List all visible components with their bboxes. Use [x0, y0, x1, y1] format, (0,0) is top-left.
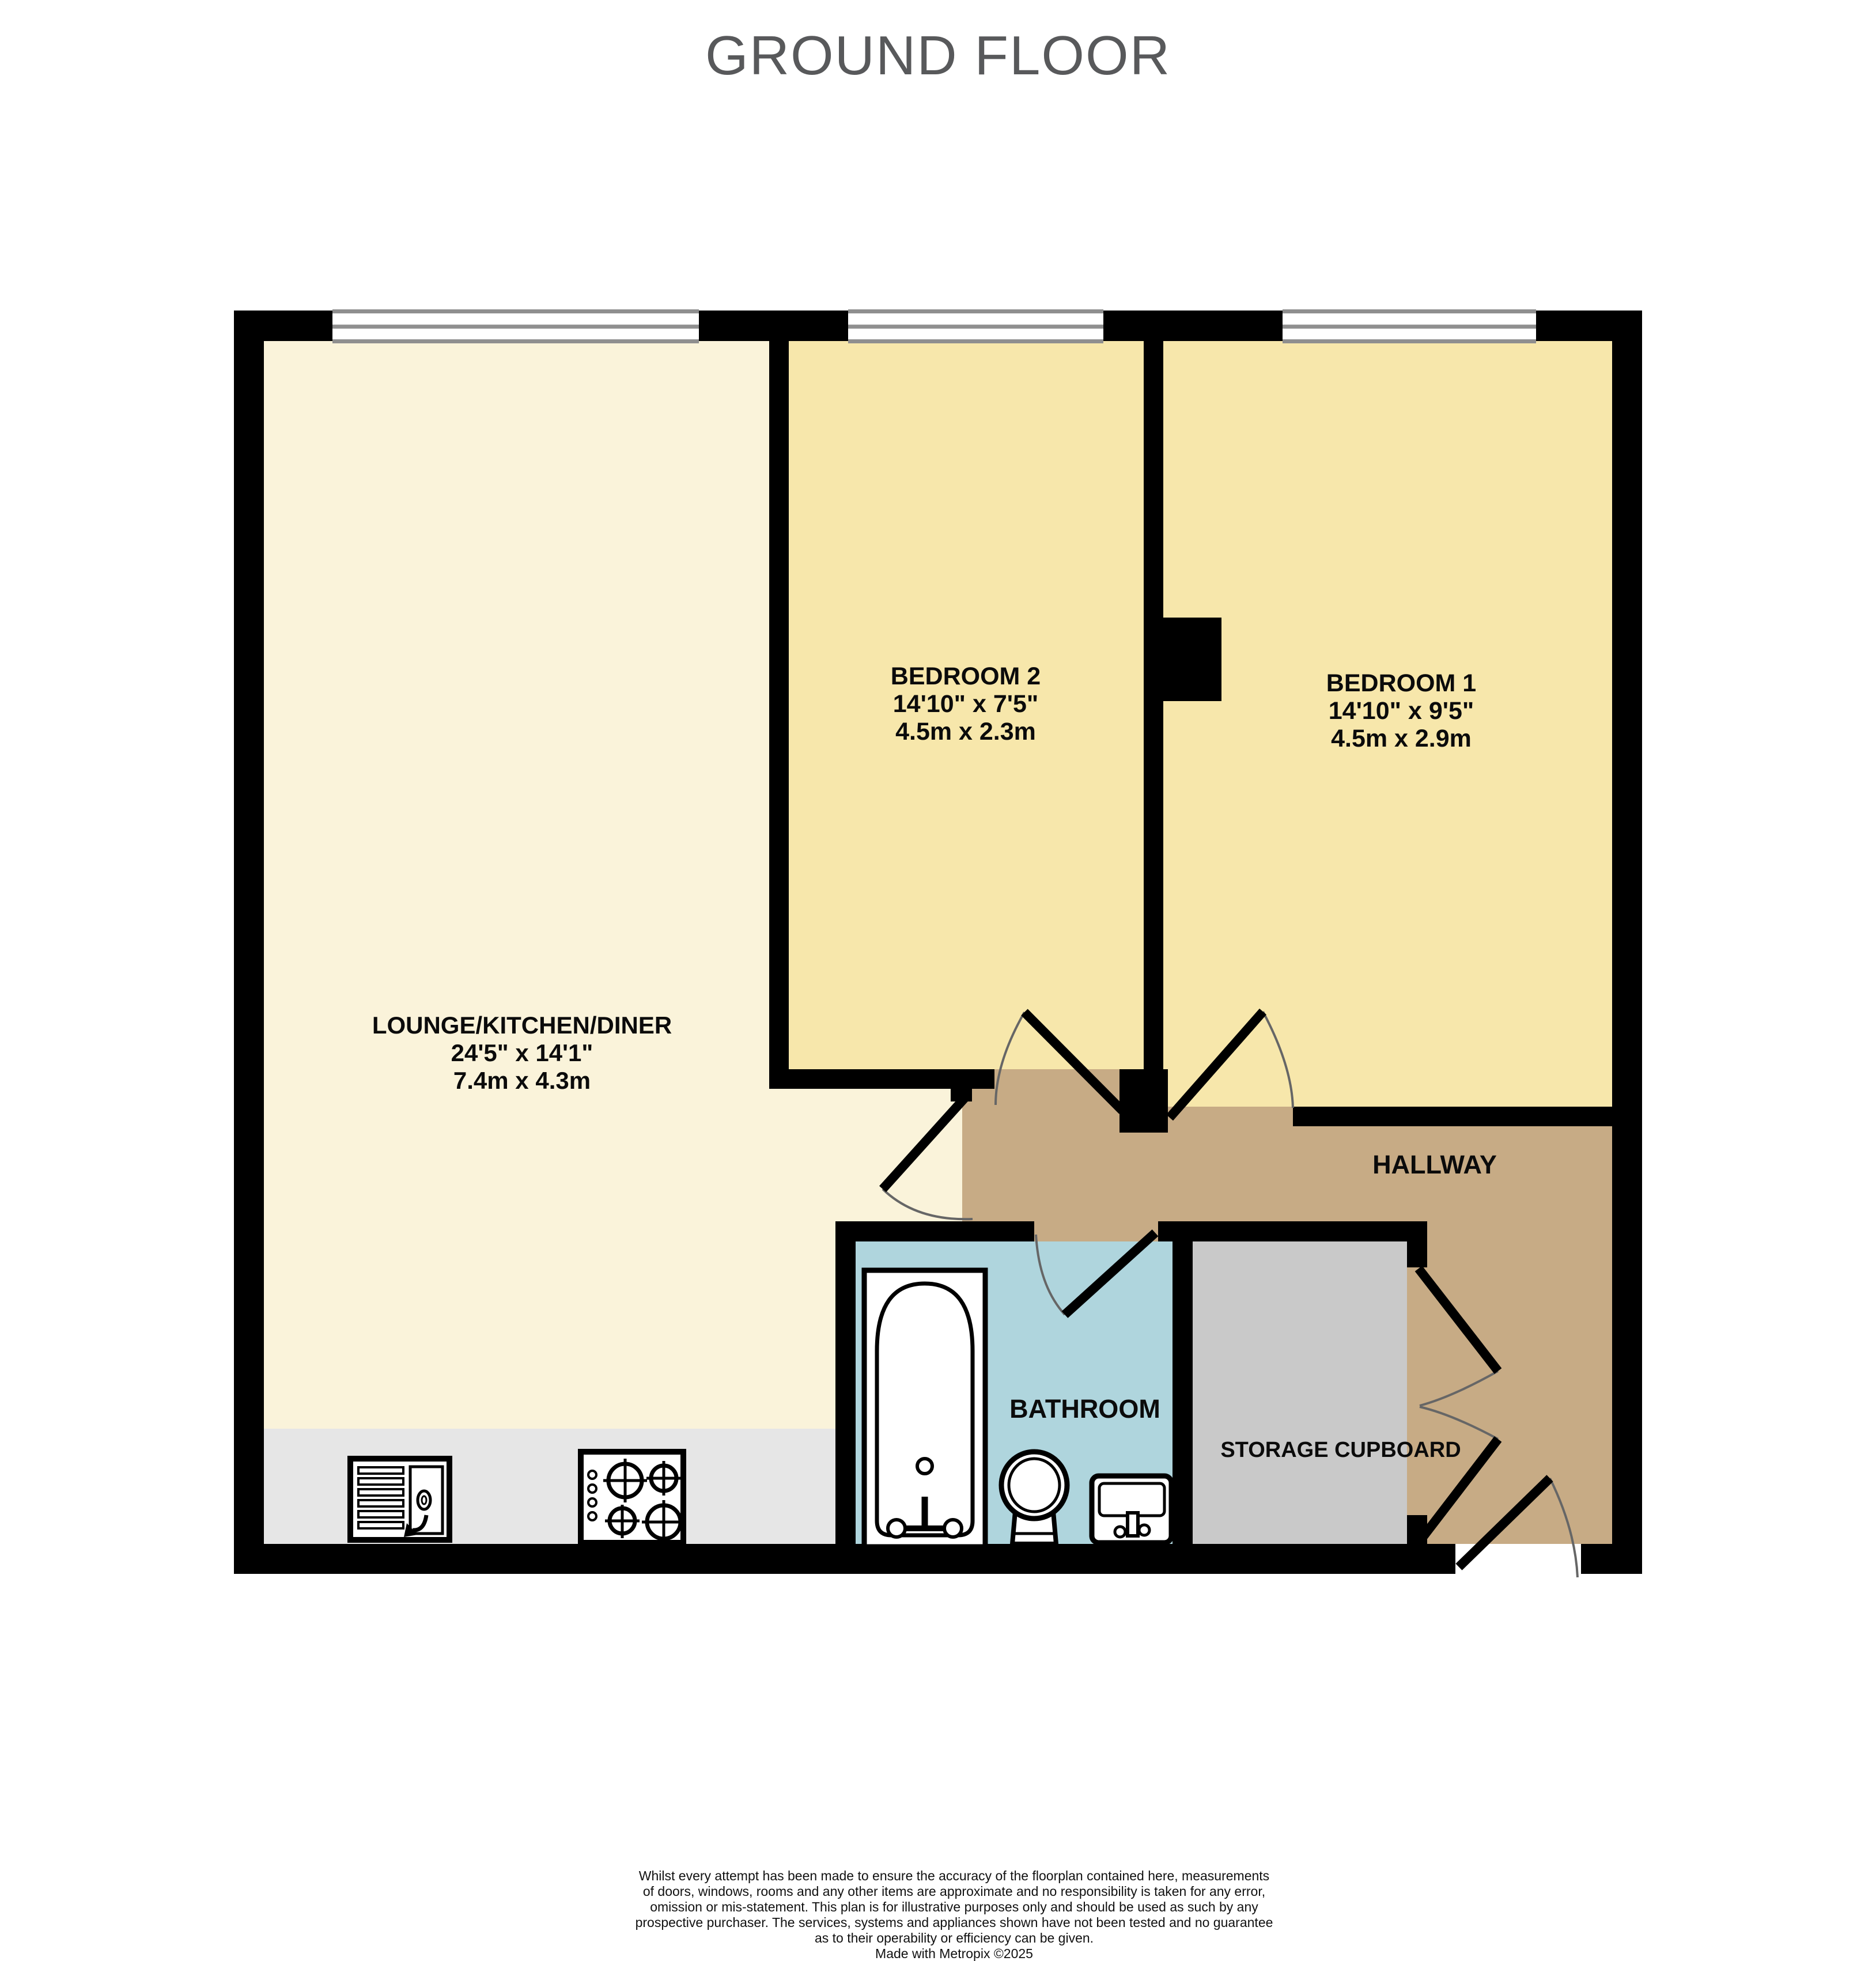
hob-icon [581, 1452, 686, 1543]
hallway-label: HALLWAY [1314, 1150, 1556, 1180]
room-size-imperial: 14'10" x 9'5" [1257, 697, 1545, 725]
bedroom1-label: BEDROOM 1 14'10" x 9'5" 4.5m x 2.9m [1257, 669, 1545, 752]
credit-line: Made with Metropix ©2025 [592, 1946, 1316, 1961]
room-name: BEDROOM 2 [822, 662, 1110, 690]
room-size-imperial: 24'5" x 14'1" [320, 1039, 724, 1067]
disclaimer-line: omission or mis-statement. This plan is … [592, 1899, 1316, 1915]
disclaimer-line: prospective purchaser. The services, sys… [592, 1915, 1316, 1930]
bedroom2-door [996, 1012, 1122, 1111]
bathroom-door [1036, 1233, 1155, 1315]
room-name: BEDROOM 1 [1257, 669, 1545, 697]
room-size-imperial: 14'10" x 7'5" [822, 690, 1110, 718]
entrance-door [1459, 1478, 1578, 1577]
disclaimer-line: of doors, windows, rooms and any other i… [592, 1884, 1316, 1899]
room-size-metric: 7.4m x 4.3m [320, 1067, 724, 1095]
basin-icon [1092, 1476, 1171, 1543]
room-size-metric: 4.5m x 2.9m [1257, 725, 1545, 752]
disclaimer-line: Whilst every attempt has been made to en… [592, 1868, 1316, 1884]
disclaimer-line: as to their operability or efficiency ca… [592, 1930, 1316, 1946]
disclaimer-text: Whilst every attempt has been made to en… [592, 1868, 1316, 1946]
storage-cupboard-doors [1419, 1269, 1498, 1543]
lounge-label: LOUNGE/KITCHEN/DINER 24'5" x 14'1" 7.4m … [320, 1012, 724, 1095]
bathroom-label: BATHROOM [970, 1394, 1200, 1424]
storage-cupboard-label: STORAGE CUPBOARD [1197, 1438, 1485, 1463]
room-size-metric: 4.5m x 2.3m [822, 718, 1110, 745]
lounge-door [883, 1096, 973, 1219]
kitchen-sink-icon [350, 1459, 449, 1540]
floorplan-page: GROUND FLOOR [0, 0, 1876, 1961]
toilet-icon [1001, 1452, 1067, 1544]
fixtures-and-doors-layer [0, 0, 1876, 1961]
bathtub-icon [864, 1270, 985, 1547]
room-name: LOUNGE/KITCHEN/DINER [320, 1012, 724, 1039]
bedroom2-label: BEDROOM 2 14'10" x 7'5" 4.5m x 2.3m [822, 662, 1110, 745]
bedroom1-door [1170, 1012, 1293, 1118]
